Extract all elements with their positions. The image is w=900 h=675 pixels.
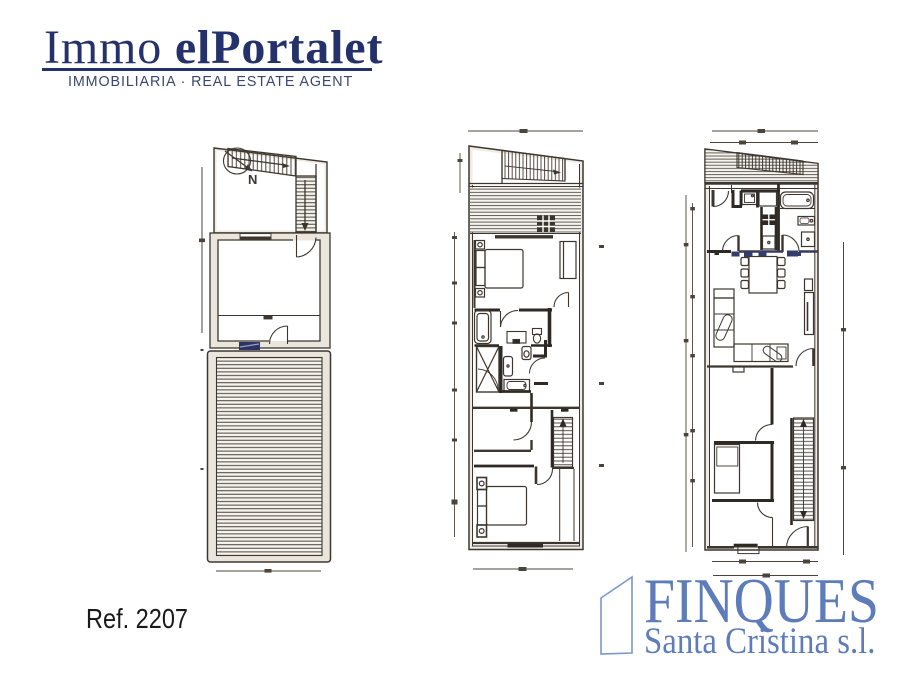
svg-text:N: N: [248, 172, 257, 187]
